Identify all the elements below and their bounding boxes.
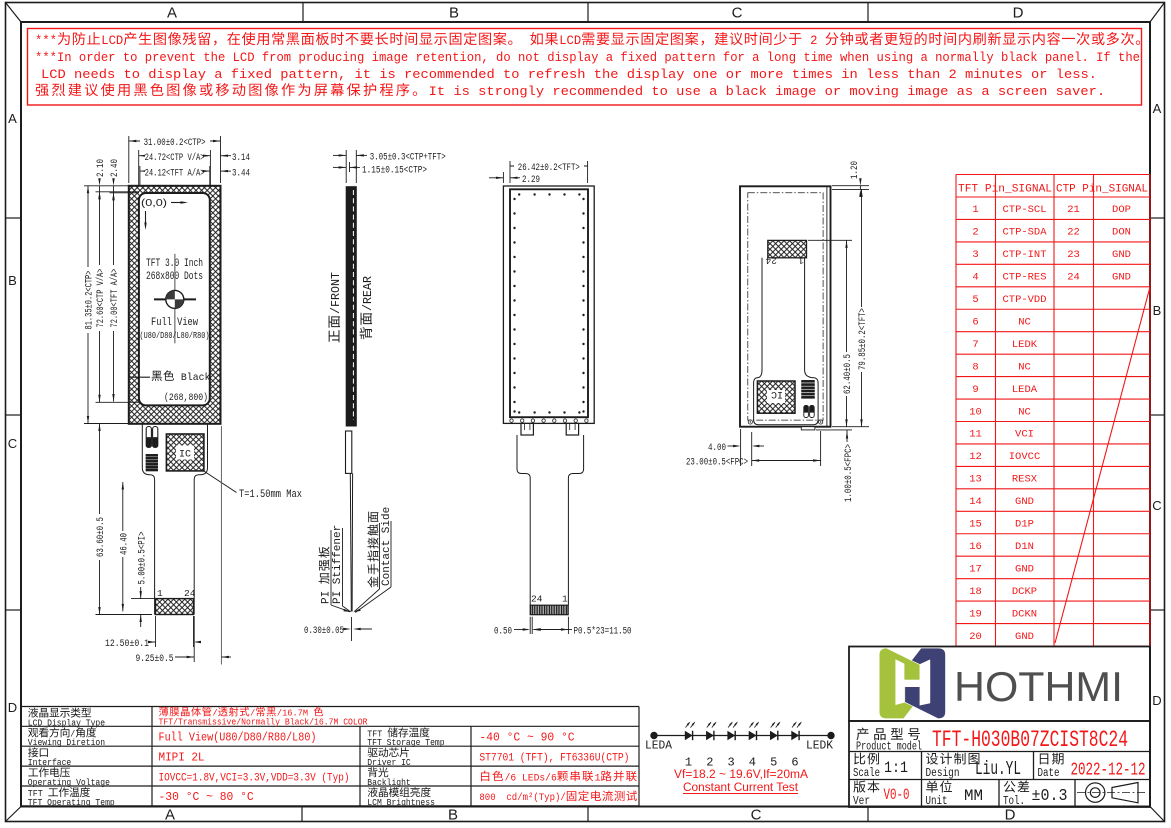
svg-text:11: 11 bbox=[969, 429, 982, 441]
svg-text:2.29: 2.29 bbox=[522, 174, 540, 186]
svg-text:4: 4 bbox=[749, 756, 756, 770]
svg-text:D1N: D1N bbox=[1015, 541, 1034, 553]
svg-text:TFT-H030B07ZCIST8C24: TFT-H030B07ZCIST8C24 bbox=[932, 727, 1128, 753]
svg-text:C: C bbox=[732, 5, 743, 22]
svg-text:3: 3 bbox=[972, 249, 978, 261]
svg-text:1.15±0.15<CTP>: 1.15±0.15<CTP> bbox=[362, 164, 427, 176]
svg-text:DCKN: DCKN bbox=[1012, 608, 1037, 620]
svg-text:Backlight: Backlight bbox=[367, 777, 410, 788]
svg-text:B: B bbox=[449, 5, 459, 22]
svg-text:C: C bbox=[1152, 498, 1161, 513]
svg-text:9: 9 bbox=[972, 384, 978, 396]
svg-text:2.10: 2.10 bbox=[95, 159, 107, 177]
svg-text:VCI: VCI bbox=[1015, 429, 1034, 441]
svg-text:±0.3: ±0.3 bbox=[1032, 787, 1068, 806]
svg-text:23.00±0.5<FPC>: 23.00±0.5<FPC> bbox=[686, 457, 748, 469]
svg-text:-30 °C ~ 80 °C: -30 °C ~ 80 °C bbox=[159, 791, 254, 804]
svg-text:Operating Voltage: Operating Voltage bbox=[28, 777, 110, 788]
svg-text:V0-0: V0-0 bbox=[884, 786, 910, 804]
svg-text:22: 22 bbox=[1067, 227, 1080, 239]
svg-text:Vf=18.2 ~ 19.6V,If=20mA: Vf=18.2 ~ 19.6V,If=20mA bbox=[674, 769, 808, 781]
svg-text:NC: NC bbox=[1018, 406, 1031, 418]
svg-text:Full View: Full View bbox=[151, 317, 198, 329]
svg-text:4: 4 bbox=[972, 272, 978, 284]
svg-text:Viewing Diretion: Viewing Diretion bbox=[28, 737, 105, 748]
svg-text:TFT Operating Temp: TFT Operating Temp bbox=[28, 797, 115, 808]
svg-text:72.00<TFT A/A>: 72.00<TFT A/A> bbox=[109, 269, 121, 328]
svg-text:HOTHMI: HOTHMI bbox=[954, 663, 1123, 710]
svg-text:1.00±0.5<FPC>: 1.00±0.5<FPC> bbox=[843, 444, 855, 502]
svg-text:0.50: 0.50 bbox=[494, 626, 512, 638]
svg-text:24.12<TFT A/A>: 24.12<TFT A/A> bbox=[145, 167, 205, 179]
svg-text:TFT Storage Temp: TFT Storage Temp bbox=[367, 737, 445, 748]
svg-text:TFT/Transmissive/Normally Blac: TFT/Transmissive/Normally Black/16.7M CO… bbox=[159, 717, 368, 728]
svg-text:24: 24 bbox=[184, 588, 196, 599]
svg-text:GND: GND bbox=[1112, 272, 1131, 284]
svg-text:IOVCC=1.8V,VCI=3.3V,VDD=3.3V (: IOVCC=1.8V,VCI=3.3V,VDD=3.3V (Typ) bbox=[159, 772, 350, 784]
svg-text:23: 23 bbox=[1067, 249, 1080, 261]
svg-text:CTP-SCL: CTP-SCL bbox=[1003, 204, 1047, 216]
svg-text:***: *** bbox=[35, 34, 57, 48]
svg-text:D: D bbox=[8, 700, 17, 715]
svg-text:Unit: Unit bbox=[926, 795, 948, 808]
svg-text:Interface: Interface bbox=[28, 757, 72, 768]
svg-text:8: 8 bbox=[972, 361, 978, 373]
svg-text:4.00: 4.00 bbox=[708, 442, 726, 454]
svg-text:/6 LEDs/6: /6 LEDs/6 bbox=[505, 772, 557, 784]
svg-text:24.72<CTP V/A>: 24.72<CTP V/A> bbox=[145, 152, 205, 164]
svg-text:GND: GND bbox=[1015, 631, 1034, 643]
svg-text:GND: GND bbox=[1112, 249, 1131, 261]
svg-text:79.85±0.2<TFT>: 79.85±0.2<TFT> bbox=[857, 308, 869, 370]
svg-text:18: 18 bbox=[969, 586, 982, 598]
svg-text:LCD Display Type: LCD Display Type bbox=[28, 717, 106, 728]
svg-text:LEDA: LEDA bbox=[1012, 384, 1038, 396]
svg-text:31.00±0.2<CTP>: 31.00±0.2<CTP> bbox=[144, 137, 206, 149]
svg-text:NC: NC bbox=[1018, 316, 1031, 328]
svg-text:LCD: LCD bbox=[559, 34, 581, 48]
svg-text:6: 6 bbox=[972, 316, 978, 328]
svg-text:GND: GND bbox=[1015, 496, 1034, 508]
svg-text:6: 6 bbox=[791, 756, 798, 770]
svg-text:LEDA: LEDA bbox=[645, 740, 672, 753]
svg-text:T=1.50mm Max: T=1.50mm Max bbox=[239, 489, 302, 501]
svg-text:Ver: Ver bbox=[853, 795, 870, 808]
svg-text:(0,0): (0,0) bbox=[141, 197, 167, 209]
svg-text:ST7701 (TFT), FT6336U(CTP): ST7701 (TFT), FT6336U(CTP) bbox=[479, 752, 629, 764]
svg-text:***In order to prevent the LCD: ***In order to prevent the LCD from prod… bbox=[35, 51, 1140, 65]
svg-text:20: 20 bbox=[969, 631, 982, 643]
svg-text:IOVCC: IOVCC bbox=[1009, 451, 1041, 463]
svg-text:1: 1 bbox=[685, 756, 692, 770]
svg-text:1: 1 bbox=[972, 204, 978, 216]
svg-text:C: C bbox=[8, 436, 17, 451]
svg-text:It is strongly recommended to: It is strongly recommended to use a blac… bbox=[429, 84, 1106, 99]
svg-text:LEDK: LEDK bbox=[1012, 339, 1038, 351]
svg-text:DOP: DOP bbox=[1112, 204, 1131, 216]
svg-text:MIPI 2L: MIPI 2L bbox=[159, 751, 205, 764]
svg-text:5: 5 bbox=[972, 294, 978, 306]
svg-text:LCD needs to display a fixed p: LCD needs to display a fixed pattern, it… bbox=[41, 68, 1097, 82]
svg-text:CTP-RES: CTP-RES bbox=[1003, 272, 1047, 284]
svg-text:2: 2 bbox=[706, 756, 713, 770]
svg-text:RESX: RESX bbox=[1012, 474, 1038, 486]
svg-text:Liu.YL: Liu.YL bbox=[975, 758, 1021, 780]
svg-text:IC: IC bbox=[771, 388, 783, 399]
svg-text:Full View(U80/D80/R80/L80): Full View(U80/D80/R80/L80) bbox=[159, 732, 317, 745]
svg-text:62.40±0.5: 62.40±0.5 bbox=[842, 354, 854, 394]
svg-text:A: A bbox=[167, 5, 177, 22]
svg-text:16: 16 bbox=[969, 541, 982, 553]
svg-text:14: 14 bbox=[969, 496, 982, 508]
svg-text:A: A bbox=[8, 111, 17, 126]
svg-text:81.35±0.2<CTP>: 81.35±0.2<CTP> bbox=[84, 271, 96, 330]
svg-text:CTP-INT: CTP-INT bbox=[1003, 249, 1047, 261]
svg-text:CTP-SDA: CTP-SDA bbox=[1003, 227, 1048, 239]
svg-text:24: 24 bbox=[765, 255, 777, 266]
svg-text:DON: DON bbox=[1112, 227, 1131, 239]
svg-text:3.44: 3.44 bbox=[232, 167, 250, 179]
svg-text:Tol.: Tol. bbox=[1003, 795, 1025, 808]
svg-text:3.14: 3.14 bbox=[232, 152, 250, 164]
svg-text:12: 12 bbox=[969, 451, 982, 463]
svg-text:A: A bbox=[1153, 101, 1162, 116]
svg-text:17: 17 bbox=[969, 563, 982, 575]
svg-text:DCKP: DCKP bbox=[1012, 586, 1037, 598]
svg-text:12.50±0.1: 12.50±0.1 bbox=[105, 638, 149, 650]
svg-text:26.42±0.2<TFT>: 26.42±0.2<TFT> bbox=[518, 162, 580, 174]
svg-text:1: 1 bbox=[157, 588, 163, 599]
svg-text:3: 3 bbox=[727, 756, 734, 770]
svg-text:Design: Design bbox=[926, 767, 960, 780]
svg-text:IC: IC bbox=[179, 450, 191, 461]
svg-text:Scale: Scale bbox=[853, 767, 880, 780]
svg-text:LCD: LCD bbox=[101, 34, 123, 48]
svg-text:/FRONT: /FRONT bbox=[330, 272, 343, 314]
svg-text:46.40: 46.40 bbox=[119, 533, 131, 555]
svg-text:D: D bbox=[1005, 807, 1016, 824]
svg-text:D1P: D1P bbox=[1015, 519, 1034, 531]
svg-text:72.60<CTP V/A>: 72.60<CTP V/A> bbox=[95, 269, 107, 328]
svg-text:LCM Brightness: LCM Brightness bbox=[367, 797, 435, 808]
svg-text:CTP Pin_SIGNAL: CTP Pin_SIGNAL bbox=[1056, 184, 1148, 196]
svg-text:3.05±0.3<CTP+TFT>: 3.05±0.3<CTP+TFT> bbox=[370, 152, 446, 164]
svg-text:TFT Pin_SIGNAL: TFT Pin_SIGNAL bbox=[958, 184, 1052, 196]
svg-text:21: 21 bbox=[1067, 204, 1080, 216]
svg-text:1: 1 bbox=[595, 772, 601, 784]
svg-text:5.00±0.5<PI>: 5.00±0.5<PI> bbox=[136, 532, 148, 585]
svg-text:A: A bbox=[165, 807, 175, 824]
svg-text:5: 5 bbox=[770, 756, 777, 770]
svg-text:13: 13 bbox=[969, 474, 982, 486]
svg-text:63.60±0.5: 63.60±0.5 bbox=[95, 517, 107, 557]
svg-text:1: 1 bbox=[562, 594, 568, 605]
svg-text:Product model: Product model bbox=[856, 741, 922, 754]
svg-text:B: B bbox=[8, 273, 17, 288]
svg-text:NC: NC bbox=[1018, 361, 1031, 373]
svg-text:24: 24 bbox=[1067, 272, 1080, 284]
svg-text:CTP-VDD: CTP-VDD bbox=[1003, 294, 1047, 306]
svg-text:1: 1 bbox=[798, 255, 804, 266]
svg-text:B: B bbox=[448, 807, 458, 824]
svg-text:15: 15 bbox=[969, 519, 982, 531]
svg-text:2: 2 bbox=[972, 227, 978, 239]
svg-text:Constant Current Test: Constant Current Test bbox=[683, 782, 799, 794]
svg-text:2: 2 bbox=[803, 34, 825, 48]
svg-text:Date: Date bbox=[1038, 767, 1060, 780]
svg-text:(268,800): (268,800) bbox=[164, 392, 208, 404]
svg-text:24: 24 bbox=[531, 594, 543, 605]
svg-text:2022-12-12: 2022-12-12 bbox=[1071, 761, 1146, 781]
svg-text:B: B bbox=[1153, 303, 1162, 318]
svg-text:1:1: 1:1 bbox=[884, 759, 908, 777]
svg-text:10: 10 bbox=[969, 406, 982, 418]
svg-text:9.25±0.5: 9.25±0.5 bbox=[136, 653, 174, 665]
svg-text:GND: GND bbox=[1015, 563, 1034, 575]
svg-text:-40 °C ~ 90 °C: -40 °C ~ 90 °C bbox=[479, 732, 574, 745]
svg-text:P0.5*23=11.50: P0.5*23=11.50 bbox=[574, 626, 632, 638]
svg-text:C: C bbox=[751, 807, 762, 824]
svg-text:2.40: 2.40 bbox=[109, 159, 121, 177]
svg-text:D: D bbox=[1013, 5, 1024, 22]
svg-text:D: D bbox=[1152, 693, 1161, 708]
svg-text:LEDK: LEDK bbox=[806, 740, 833, 753]
svg-text:0.30±0.05: 0.30±0.05 bbox=[304, 625, 344, 637]
svg-text:(U80/D80/L80/R80): (U80/D80/L80/R80) bbox=[140, 330, 210, 341]
svg-text:800 cd/m²(Typ)/: 800 cd/m²(Typ)/ bbox=[479, 792, 565, 804]
svg-text:7: 7 bbox=[972, 339, 978, 351]
svg-text:Driver IC: Driver IC bbox=[367, 757, 411, 768]
svg-text:19: 19 bbox=[969, 608, 982, 620]
svg-text:1.20: 1.20 bbox=[849, 161, 861, 179]
svg-text:/REAR: /REAR bbox=[362, 276, 375, 311]
svg-text:MM: MM bbox=[964, 787, 983, 805]
svg-text:Black: Black bbox=[175, 372, 210, 384]
